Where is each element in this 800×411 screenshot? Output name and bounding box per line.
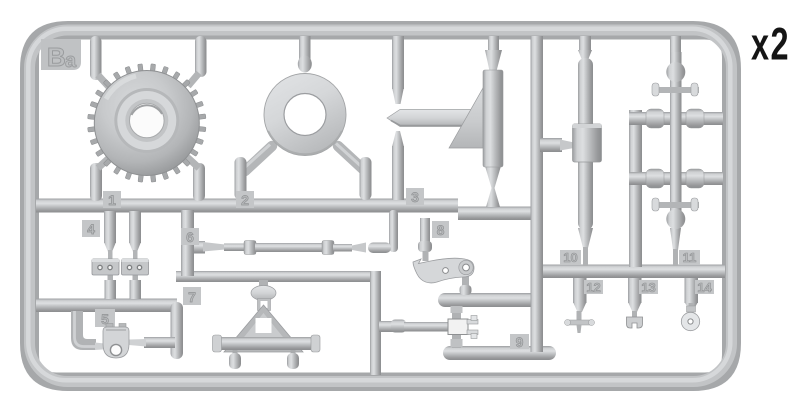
svg-text:6: 6 [186, 229, 194, 245]
svg-text:2: 2 [241, 192, 249, 208]
svg-text:7: 7 [188, 289, 196, 305]
svg-text:1: 1 [108, 192, 116, 208]
svg-text:B: B [47, 42, 66, 72]
svg-text:13: 13 [641, 280, 655, 295]
svg-text:12: 12 [586, 280, 600, 295]
svg-text:8: 8 [437, 222, 445, 238]
svg-text:11: 11 [683, 250, 697, 265]
svg-text:3: 3 [411, 189, 419, 205]
svg-text:14: 14 [697, 280, 712, 295]
svg-text:4: 4 [87, 221, 95, 237]
svg-text:9: 9 [516, 334, 524, 350]
svg-text:x2: x2 [751, 19, 790, 70]
svg-text:a: a [65, 50, 77, 72]
svg-text:10: 10 [563, 250, 577, 265]
